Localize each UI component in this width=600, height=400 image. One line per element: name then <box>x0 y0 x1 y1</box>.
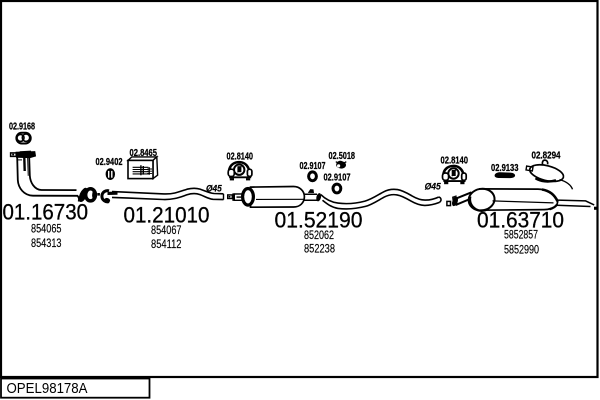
svg-text:852062: 852062 <box>304 228 334 242</box>
svg-text:Ø45: Ø45 <box>206 184 222 195</box>
svg-text:854313: 854313 <box>31 236 62 250</box>
svg-text:852238: 852238 <box>304 241 335 255</box>
svg-text:854112: 854112 <box>151 237 182 251</box>
svg-text:854065: 854065 <box>31 222 62 236</box>
svg-text:854067: 854067 <box>151 223 182 237</box>
svg-text:02.5018: 02.5018 <box>329 151 356 162</box>
svg-text:OPEL98178A: OPEL98178A <box>7 381 88 397</box>
svg-text:5852990: 5852990 <box>504 243 539 257</box>
svg-text:Ø45: Ø45 <box>425 182 442 193</box>
svg-text:02.9107: 02.9107 <box>324 173 351 184</box>
svg-text:5852857: 5852857 <box>504 228 538 242</box>
svg-text:02.9402: 02.9402 <box>96 157 123 168</box>
svg-text:02.9168: 02.9168 <box>9 122 35 133</box>
